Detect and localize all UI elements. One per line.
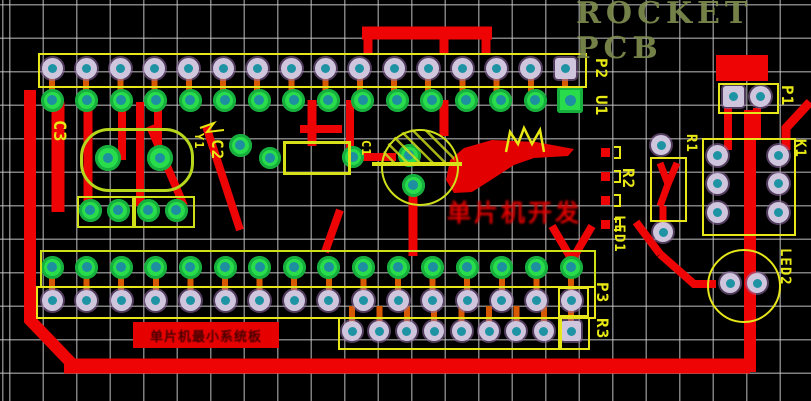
label-y1: Y1 <box>193 133 205 149</box>
through-hole-pad-green <box>352 256 375 279</box>
through-hole-pad-ring <box>653 222 673 242</box>
through-hole-pad-ring <box>42 290 63 311</box>
through-hole-pad-green <box>144 256 167 279</box>
through-hole-pad-ring <box>555 58 576 79</box>
through-hole-pad-ring <box>76 58 97 79</box>
through-hole-pad-ring <box>747 273 767 293</box>
label-r2: R2 <box>620 168 636 189</box>
through-hole-pad-green <box>421 256 444 279</box>
through-hole-pad-ring <box>388 290 409 311</box>
through-hole-pad-ring <box>284 290 305 311</box>
through-hole-pad-ring <box>768 145 789 166</box>
through-hole-pad-ring <box>750 86 771 107</box>
through-hole-pad-green <box>420 89 443 112</box>
through-hole-pad-ring <box>144 58 165 79</box>
through-hole-pad-ring <box>249 290 270 311</box>
through-hole-pad-green <box>179 89 202 112</box>
through-hole-pad-ring <box>651 135 671 155</box>
label-led1: LED1 <box>612 215 626 253</box>
through-hole-pad-green <box>259 147 281 169</box>
through-hole-pad-ring <box>342 321 362 341</box>
through-hole-pad-ring <box>247 58 268 79</box>
label-led2: LED2 <box>778 248 792 286</box>
through-hole-pad-ring <box>422 290 443 311</box>
through-hole-pad-green <box>248 89 271 112</box>
through-hole-pad-green <box>213 89 236 112</box>
through-hole-pad-ring <box>479 321 499 341</box>
through-hole-pad-green <box>525 256 548 279</box>
through-hole-pad-green <box>317 256 340 279</box>
through-hole-pad-ring <box>111 290 132 311</box>
through-hole-pad-green <box>41 256 64 279</box>
through-hole-pad-green <box>75 89 98 112</box>
through-hole-pad-green <box>79 199 102 222</box>
through-hole-pad-green <box>147 145 173 171</box>
through-hole-pad-green <box>398 144 421 167</box>
through-hole-pad-ring <box>145 290 166 311</box>
through-hole-pad-green <box>248 256 271 279</box>
through-hole-pad-ring <box>384 58 405 79</box>
through-hole-pad-ring <box>178 58 199 79</box>
through-hole-pad-ring <box>349 58 370 79</box>
through-hole-pad-ring <box>723 86 744 107</box>
through-hole-pad-green <box>560 256 583 279</box>
through-hole-pad-ring <box>534 321 554 341</box>
through-hole-pad-ring <box>457 290 478 311</box>
through-hole-pad-green <box>524 89 547 112</box>
through-hole-pad-ring <box>768 173 789 194</box>
through-hole-pad-ring <box>215 290 236 311</box>
through-hole-pad-green <box>456 256 479 279</box>
through-hole-pad-green <box>489 89 512 112</box>
through-hole-pad-ring <box>561 290 582 311</box>
through-hole-pad-green <box>283 256 306 279</box>
label-r3: R3 <box>594 318 610 339</box>
through-hole-pad-ring <box>418 58 439 79</box>
through-hole-pad-ring <box>110 58 131 79</box>
through-hole-pad-ring <box>720 273 740 293</box>
through-hole-pad-ring <box>561 321 581 341</box>
bottom-red-label: 单片机最小系统板 <box>133 322 279 348</box>
through-hole-pad-green <box>387 256 410 279</box>
through-hole-pad-ring <box>491 290 512 311</box>
red-blob-watermark <box>446 140 574 193</box>
through-hole-pad-green <box>386 89 409 112</box>
through-hole-pad-green <box>351 89 374 112</box>
label-c2: C2 <box>209 139 225 160</box>
brand-watermark: ROCKET PCB <box>576 0 811 66</box>
through-hole-pad-green <box>41 89 64 112</box>
through-hole-pad-green <box>490 256 513 279</box>
bottom-red-label-text: 单片机最小系统板 <box>150 326 262 345</box>
through-hole-pad-ring <box>452 321 472 341</box>
through-hole-pad-ring <box>707 202 728 223</box>
through-hole-pad-ring <box>76 290 97 311</box>
through-hole-pad-green <box>137 199 160 222</box>
label-r1: R1 <box>684 134 698 153</box>
label-p3: P3 <box>594 282 610 303</box>
through-hole-pad-ring <box>452 58 473 79</box>
through-hole-pad-ring <box>42 58 63 79</box>
label-k1: K1 <box>793 139 807 158</box>
label-c1: C1 <box>360 140 372 156</box>
through-hole-pad-ring <box>397 321 417 341</box>
through-hole-pad-ring <box>318 290 339 311</box>
pcb-layout-canvas: C3 Y1 C2 C1 P2 U1 R2 LED1 R1 P1 K1 LED2 … <box>0 0 811 401</box>
through-hole-pad-green <box>557 87 583 113</box>
through-hole-pad-ring <box>526 290 547 311</box>
through-hole-pad-green <box>402 174 425 197</box>
through-hole-pad-ring <box>707 145 728 166</box>
through-hole-pad-ring <box>707 173 728 194</box>
through-hole-pad-green <box>110 256 133 279</box>
through-hole-pad-green <box>110 89 133 112</box>
through-hole-pad-green <box>229 134 252 157</box>
through-hole-pad-green <box>214 256 237 279</box>
red-watermark-text: 单片机开发 <box>447 193 582 228</box>
through-hole-pad-green <box>95 145 121 171</box>
through-hole-pad-ring <box>520 58 541 79</box>
through-hole-pad-green <box>75 256 98 279</box>
label-c3: C3 <box>50 120 67 142</box>
through-hole-pad-ring <box>353 290 374 311</box>
label-u1: U1 <box>593 95 609 116</box>
label-p1: P1 <box>779 85 795 106</box>
through-hole-pad-ring <box>768 202 789 223</box>
through-hole-pad-green <box>179 256 202 279</box>
through-hole-pad-green <box>455 89 478 112</box>
through-hole-pad-green <box>144 89 167 112</box>
through-hole-pad-ring <box>315 58 336 79</box>
through-hole-pad-ring <box>180 290 201 311</box>
through-hole-pad-ring <box>281 58 302 79</box>
through-hole-pad-green <box>317 89 340 112</box>
through-hole-pad-green <box>107 199 130 222</box>
through-hole-pad-green <box>282 89 305 112</box>
through-hole-pad-ring <box>213 58 234 79</box>
through-hole-pad-green <box>165 199 188 222</box>
through-hole-pad-ring <box>486 58 507 79</box>
